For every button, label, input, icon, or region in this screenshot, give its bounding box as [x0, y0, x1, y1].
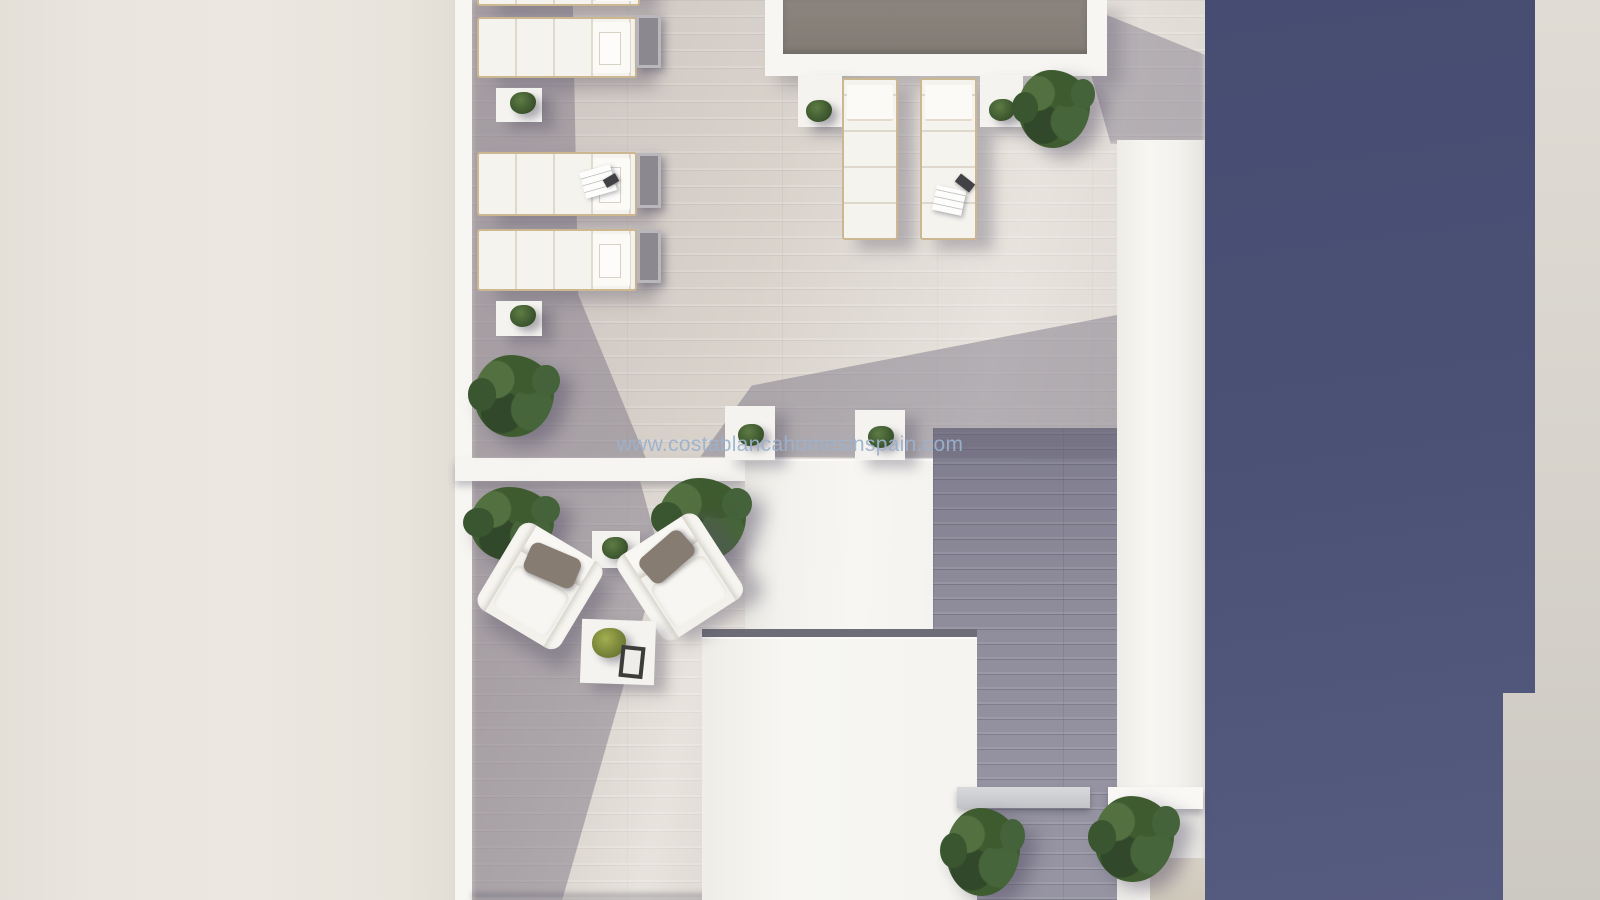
white-roof-structure-upper	[745, 459, 933, 630]
rooftop-terrace-render: www.costablancahomesinspain.com	[0, 0, 1600, 900]
white-roof-structure-lower	[702, 637, 977, 900]
swimming-pool	[783, 0, 1087, 54]
low-bench	[957, 787, 1090, 808]
lounger-side-table	[637, 230, 661, 283]
navy-adjacent-building	[1205, 0, 1535, 900]
sun-lounger	[477, 17, 637, 78]
sun-lounger	[477, 229, 637, 291]
lounger-side-table	[636, 15, 661, 68]
right-white-wall	[1117, 140, 1205, 900]
lounger-side-table	[637, 153, 661, 208]
left-building-roof	[0, 0, 455, 900]
watermark-text: www.costablancahomesinspain.com	[460, 433, 1120, 457]
sun-lounger-poolside	[842, 78, 898, 240]
sun-lounger-poolside	[920, 78, 977, 240]
sun-lounger-partial	[477, 0, 640, 6]
decor-tray	[618, 645, 645, 679]
